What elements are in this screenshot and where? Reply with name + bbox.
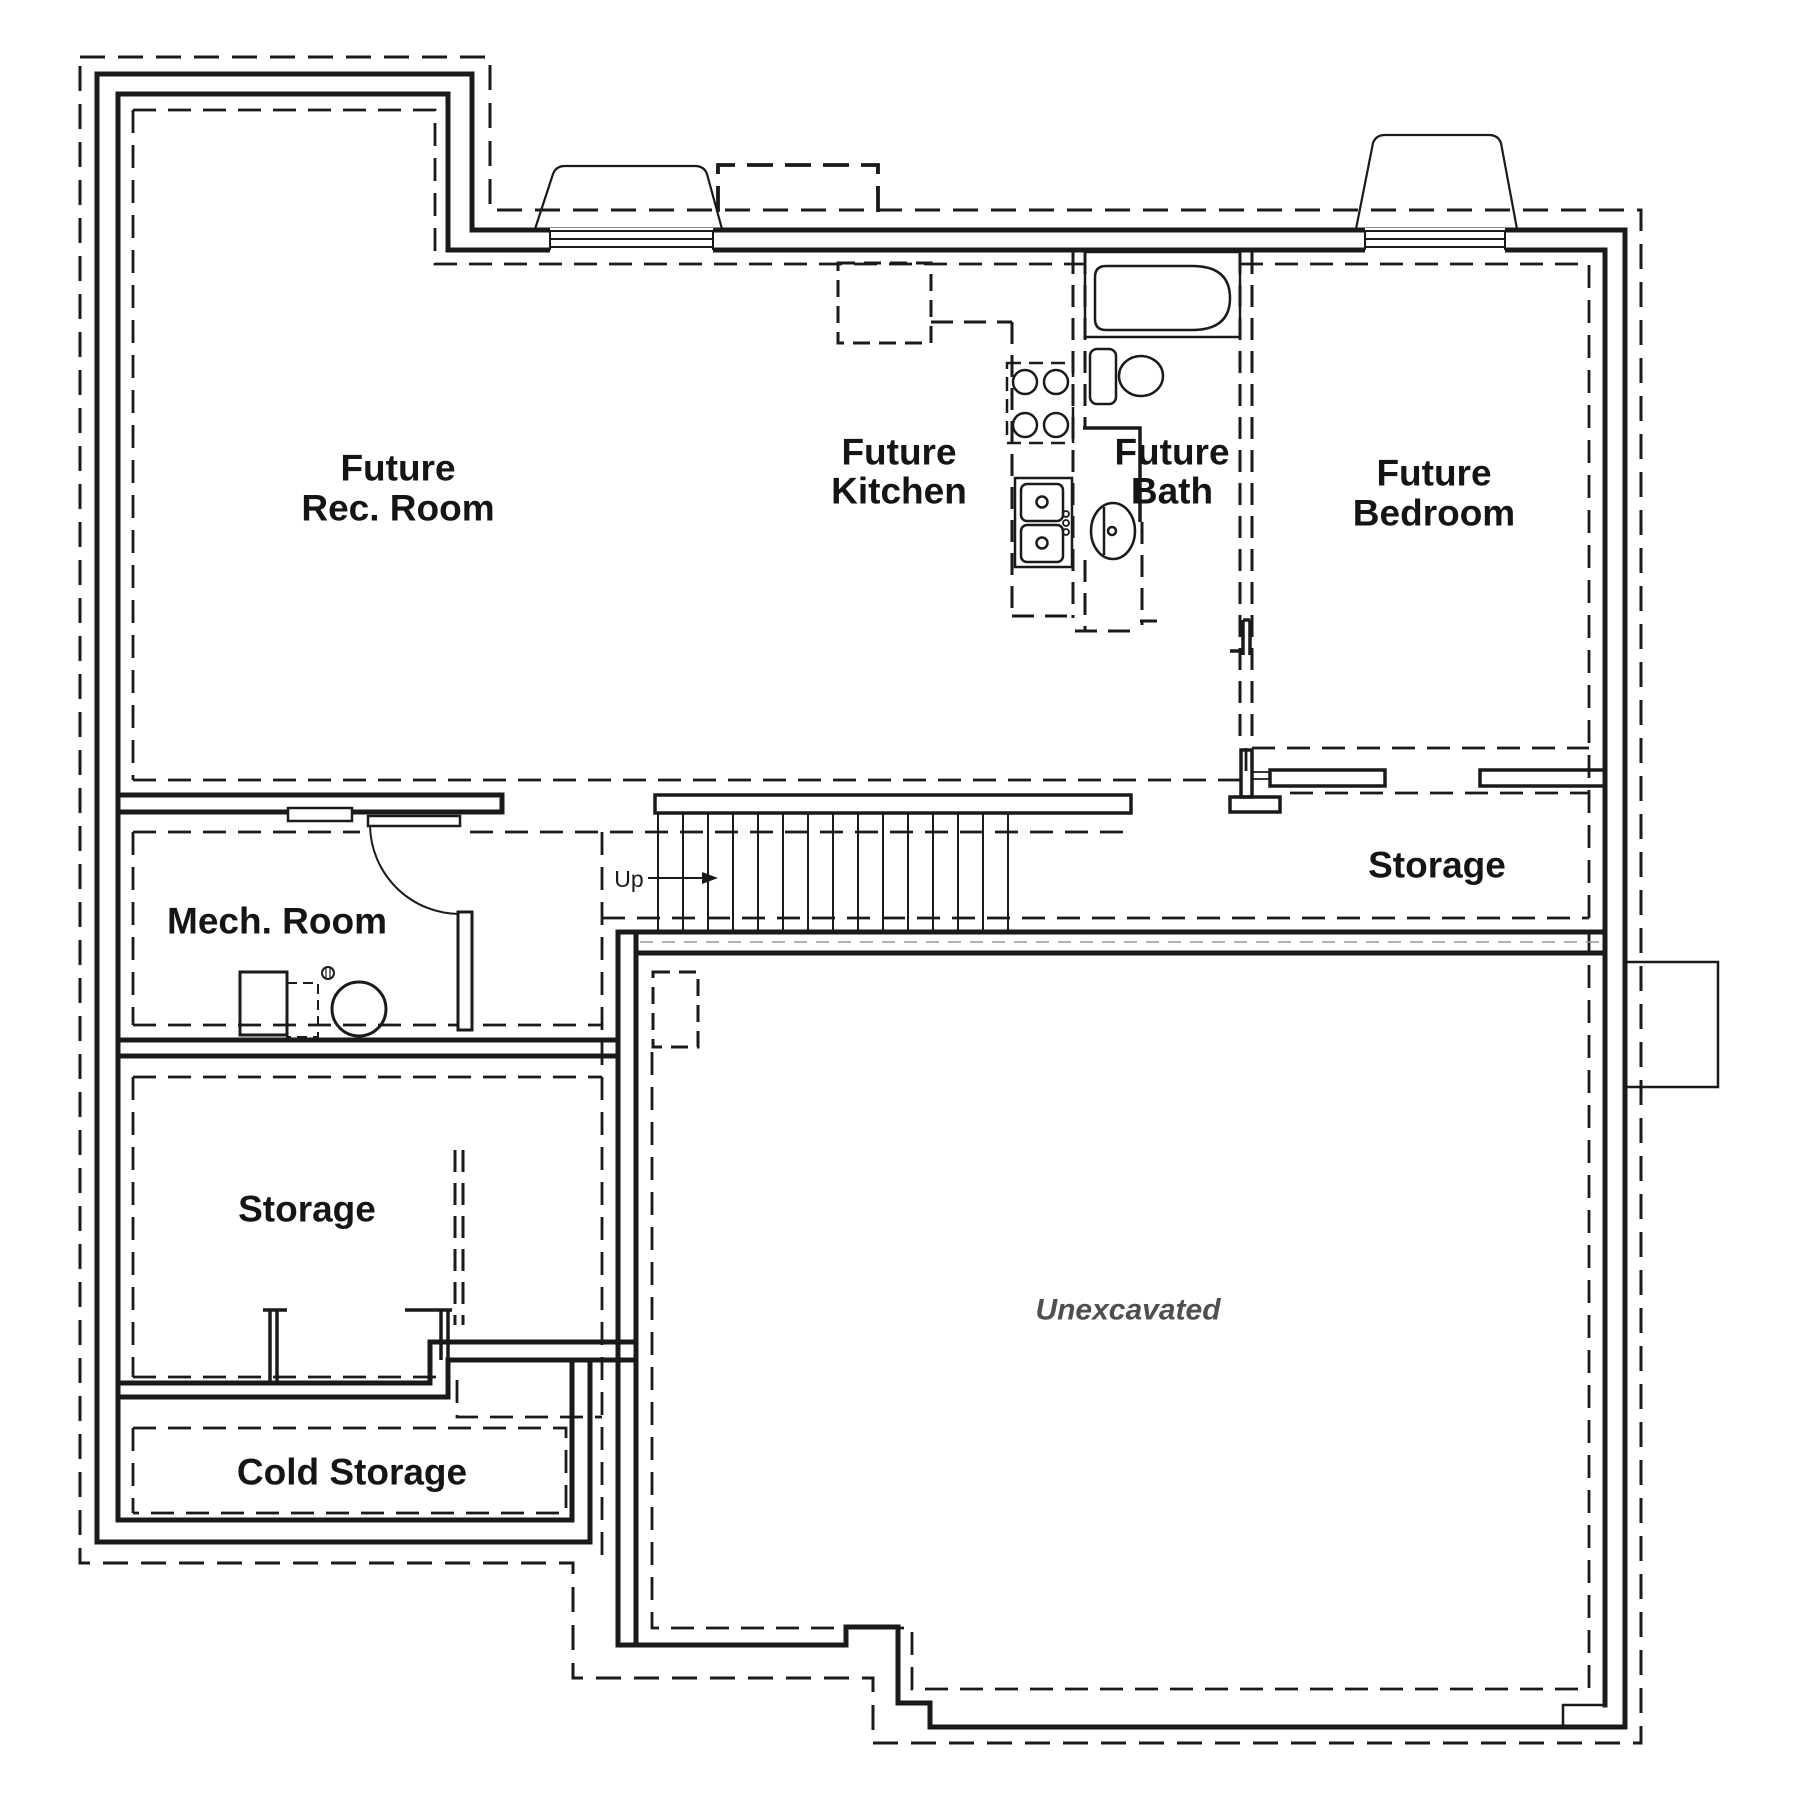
- label-cold-storage: Cold Storage: [237, 1452, 467, 1493]
- pier-pad-dashed-square: [653, 972, 698, 1047]
- label-storage-right: Storage: [1368, 845, 1506, 886]
- kitchen-dashed-square: [838, 263, 931, 343]
- label-bedroom-line2: Bedroom: [1353, 493, 1515, 534]
- window-well-icon-left: [535, 166, 722, 229]
- furnace-icon: [240, 972, 318, 1037]
- label-unexcavated: Unexcavated: [1035, 1294, 1221, 1327]
- label-kitchen-line1: Future: [841, 432, 956, 473]
- label-bedroom-line1: Future: [1376, 453, 1491, 494]
- pedestal-sink-icon: [1091, 503, 1135, 559]
- door-sill: [288, 808, 352, 821]
- label-kitchen-line2: Kitchen: [831, 471, 967, 512]
- window-right: [1365, 228, 1505, 253]
- bedroom-storage-wall-right: [1480, 770, 1605, 786]
- egress-window-bump: [1625, 962, 1718, 1087]
- label-rec-room-line2: Rec. Room: [301, 488, 494, 529]
- toilet-icon: [1090, 349, 1163, 404]
- foundation-step-notch: [1563, 1705, 1605, 1727]
- dashed-area-well: [718, 165, 878, 212]
- future-wall-dashed-lines: [455, 252, 1252, 1325]
- floor-plan-canvas: Future Rec. Room Future Kitchen Future B…: [0, 0, 1800, 1800]
- storage-wall-stub-left: [263, 1310, 287, 1383]
- wall-column-foot: [1230, 797, 1280, 812]
- label-bath-line1: Future: [1114, 432, 1229, 473]
- stair-header-wall: [655, 795, 1131, 813]
- dashed-pier-squares: [653, 263, 931, 1047]
- double-sink-icon: [1015, 478, 1072, 567]
- floor-drain-icon: [322, 967, 334, 979]
- label-stairs-up: Up: [614, 866, 643, 892]
- window-well-icon-right: [1356, 135, 1517, 229]
- bathtub-icon: [1085, 252, 1240, 337]
- label-bath-line2: Bath: [1131, 471, 1213, 512]
- door-panel: [368, 816, 460, 826]
- window-left: [550, 228, 713, 253]
- label-mech-room: Mech. Room: [167, 901, 387, 942]
- bedroom-storage-wall-left: [1270, 770, 1385, 786]
- basement-floor-plan: Future Rec. Room Future Kitchen Future B…: [0, 0, 1800, 1800]
- door-jamb-wall-stub: [458, 912, 472, 1030]
- stairs: [658, 813, 1008, 930]
- label-rec-room-line1: Future: [340, 448, 455, 489]
- water-heater-icon: [332, 982, 386, 1036]
- stove-icon: [1007, 363, 1073, 443]
- label-storage-lower: Storage: [238, 1189, 376, 1230]
